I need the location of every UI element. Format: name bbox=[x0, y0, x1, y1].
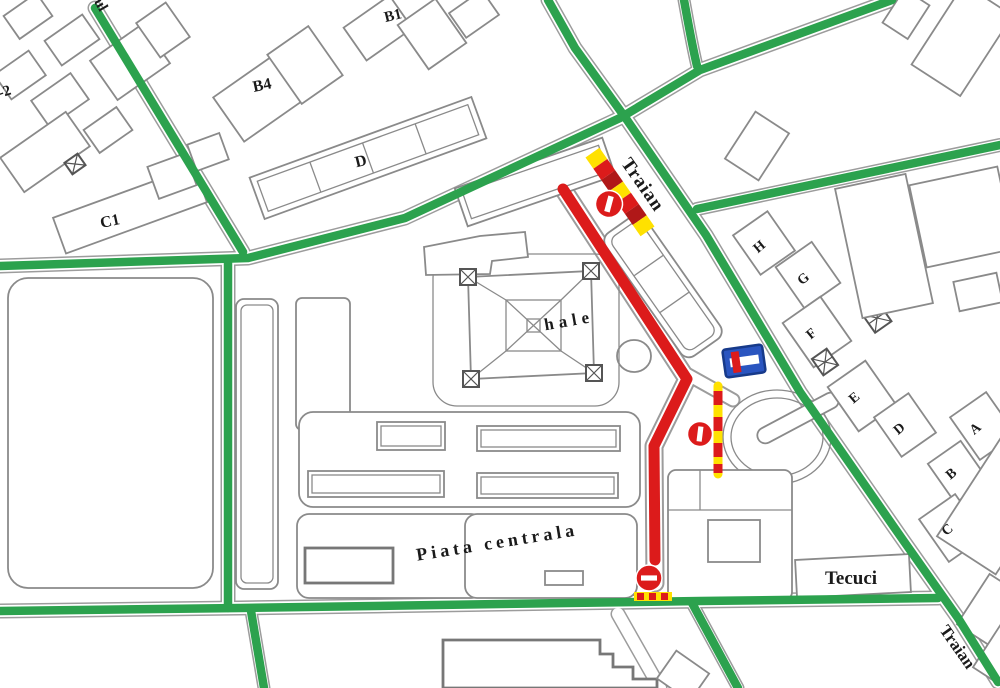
dead-end-sign bbox=[722, 344, 766, 377]
no-entry-sign-bottom bbox=[636, 565, 662, 591]
barrier-dashed-middle bbox=[714, 386, 723, 474]
city-map: Traian Traian Tecuci ul hale Piata centr… bbox=[0, 0, 1000, 688]
street-label-tecuci: Tecuci bbox=[825, 568, 877, 589]
small-circle-island bbox=[617, 340, 651, 372]
barrier-dashed-bottom bbox=[634, 592, 672, 601]
west-open-block bbox=[8, 278, 213, 588]
no-entry-sign-middle bbox=[686, 420, 714, 448]
map-canvas: Traian Traian Tecuci ul hale Piata centr… bbox=[0, 0, 1000, 688]
